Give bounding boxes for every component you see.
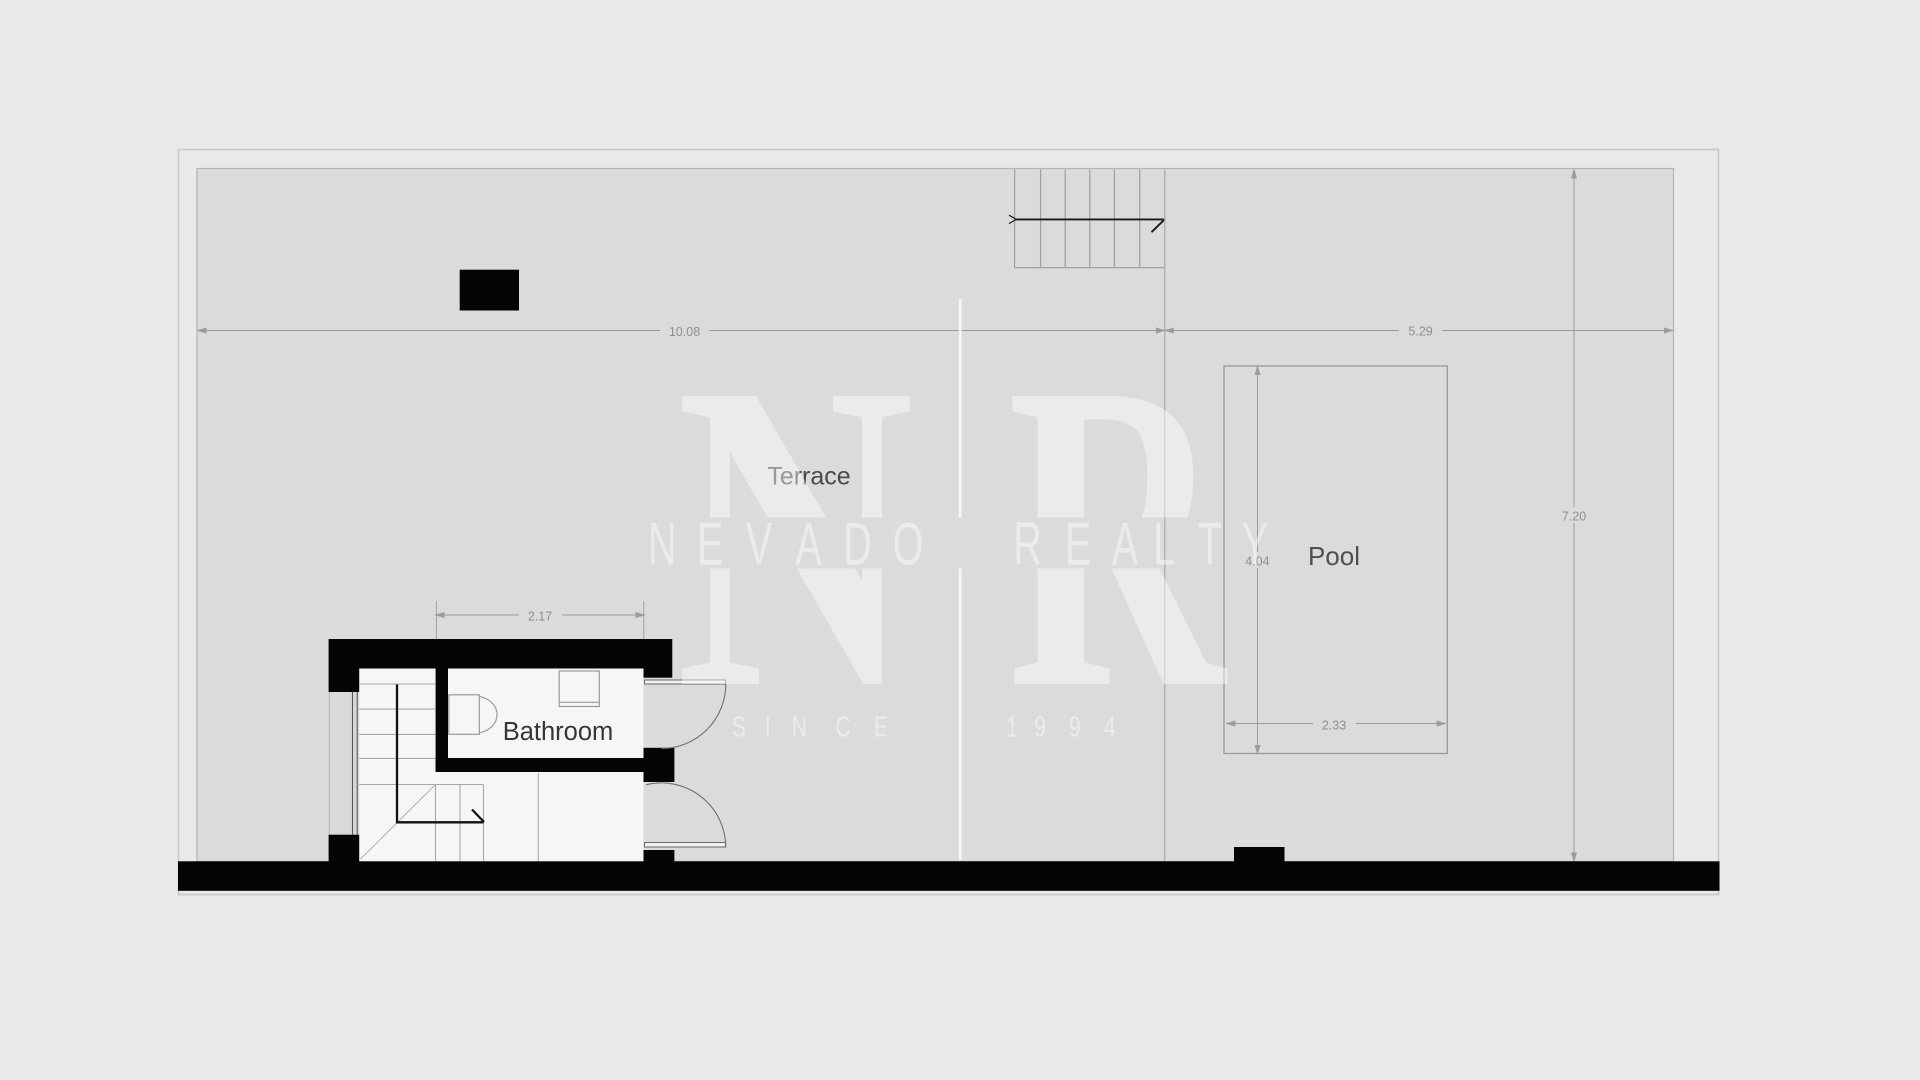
svg-text:S: S	[732, 711, 746, 743]
svg-text:O: O	[893, 510, 924, 577]
svg-text:Bathroom: Bathroom	[503, 718, 614, 746]
svg-text:2.33: 2.33	[1322, 719, 1346, 733]
svg-text:L: L	[1153, 510, 1175, 577]
svg-text:R: R	[1013, 510, 1042, 577]
svg-text:C: C	[836, 711, 851, 743]
svg-text:N: N	[648, 510, 677, 577]
svg-text:E: E	[1065, 510, 1091, 577]
svg-text:5.29: 5.29	[1408, 325, 1432, 339]
svg-text:V: V	[746, 510, 772, 577]
svg-text:E: E	[874, 711, 888, 743]
svg-text:Pool: Pool	[1308, 541, 1360, 571]
svg-text:Y: Y	[1242, 510, 1268, 577]
svg-text:D: D	[843, 510, 872, 577]
svg-text:9: 9	[1034, 711, 1046, 743]
svg-text:T: T	[1198, 510, 1222, 577]
svg-text:I: I	[765, 711, 771, 743]
svg-text:1: 1	[1006, 711, 1018, 743]
svg-text:E: E	[697, 510, 723, 577]
svg-text:4: 4	[1104, 711, 1116, 743]
svg-text:7.20: 7.20	[1562, 510, 1586, 524]
svg-text:A: A	[1112, 510, 1138, 577]
svg-text:A: A	[795, 510, 821, 577]
svg-text:2.17: 2.17	[528, 610, 552, 624]
svg-text:N: N	[792, 711, 807, 743]
svg-text:9: 9	[1069, 711, 1081, 743]
